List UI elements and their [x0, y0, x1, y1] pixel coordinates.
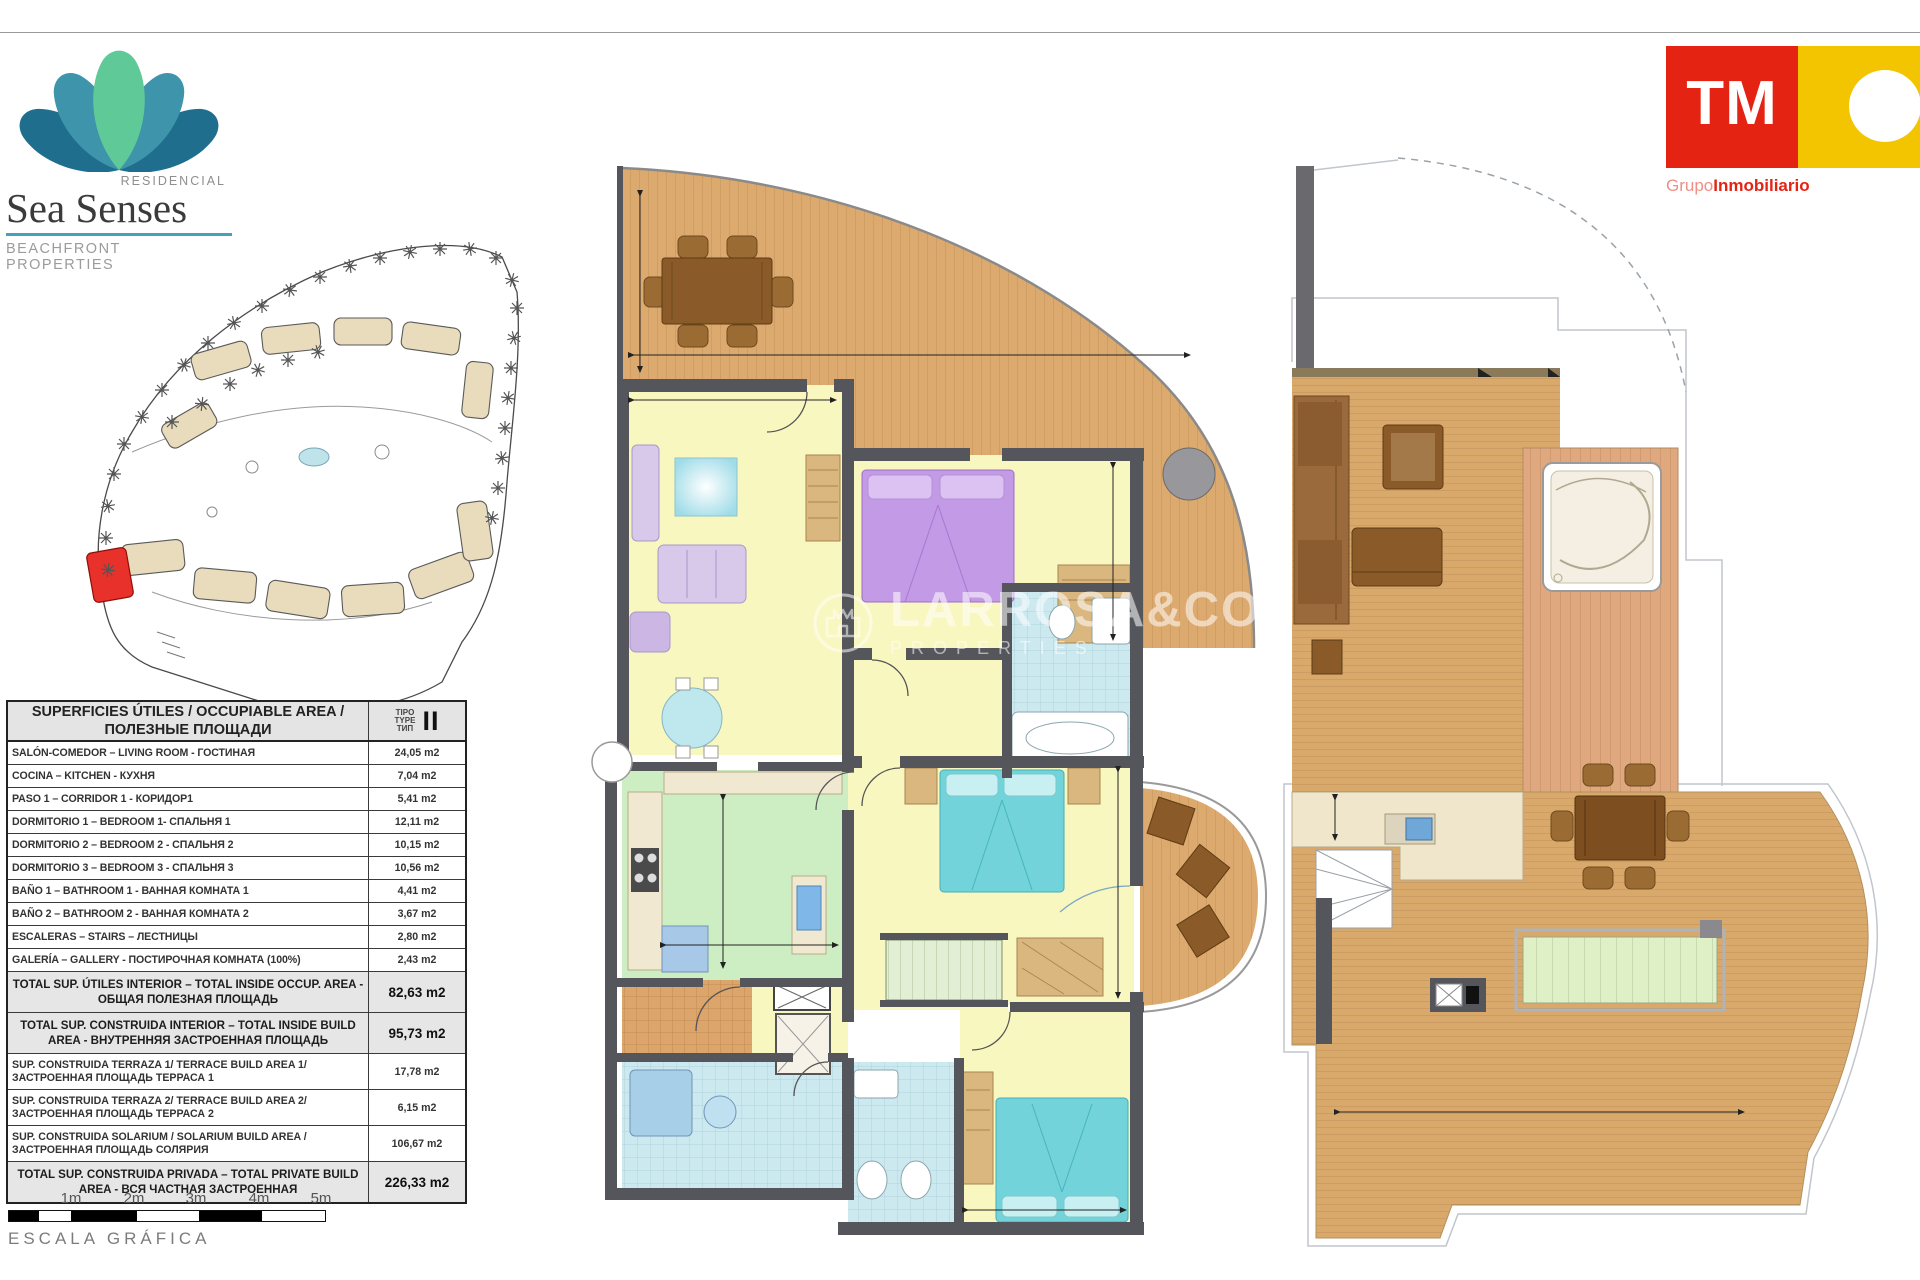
areas-table: SUPERFICIES ÚTILES / OCCUPIABLE AREA / П…	[6, 700, 467, 1204]
graphic-scale: 1m 2m 3m 4m 5m ESCALA GRÁFICA	[8, 1190, 348, 1249]
table-row: SUP. CONSTRUIDA TERRAZA 2/ TERRACE BUILD…	[7, 1090, 466, 1126]
scale-label-3m: 3m	[176, 1190, 216, 1207]
areas-table-title: SUPERFICIES ÚTILES / OCCUPIABLE AREA / П…	[7, 701, 369, 741]
type-line-ru: ТИП	[395, 725, 416, 733]
solarium-left-wall	[1296, 166, 1314, 396]
jacuzzi-area	[1523, 448, 1678, 792]
main-floor-plan	[592, 166, 1266, 1235]
site-plan-sketch	[86, 241, 524, 710]
scale-label-5m: 5m	[301, 1190, 341, 1207]
terrace-round-table	[1163, 448, 1215, 500]
table-row-total: TOTAL SUP. ÚTILES INTERIOR – TOTAL INSID…	[7, 972, 466, 1013]
areas-table-type-cell: TIPO TYPE ТИП II	[369, 701, 467, 741]
table-row: SALÓN-COMEDOR – LIVING ROOM - ГОСТИНАЯ24…	[7, 741, 466, 765]
areas-table-header: SUPERFICIES ÚTILES / OCCUPIABLE AREA / П…	[7, 701, 466, 741]
solarium-dashed-arc	[1398, 158, 1686, 392]
floorplan-brochure-page: RESIDENCIAL Sea Senses BEACHFRONT PROPER…	[0, 0, 1920, 1280]
table-row: BAÑO 2 – BATHROOM 2 - ВАННАЯ КОМНАТА 23,…	[7, 903, 466, 926]
scale-caption: ESCALA GRÁFICA	[8, 1229, 348, 1249]
type-value: II	[422, 706, 439, 737]
highlighted-unit-marker	[86, 547, 134, 603]
gallery-floor	[622, 980, 752, 1062]
table-row: SUP. CONSTRUIDA SOLARIUM / SOLARIUM BUIL…	[7, 1126, 466, 1162]
scale-label-4m: 4m	[239, 1190, 279, 1207]
table-row: GALERÍA – GALLERY - ПОСТИРОЧНАЯ КОМНАТА …	[7, 949, 466, 972]
plan-column-symbol	[592, 742, 632, 782]
scale-bar	[8, 1210, 326, 1222]
table-row: ESCALERAS – STAIRS – ЛЕСТНИЦЫ2,80 m2	[7, 926, 466, 949]
table-row: BAÑO 1 – BATHROOM 1 - ВАННАЯ КОМНАТА 14,…	[7, 880, 466, 903]
table-row: SUP. CONSTRUIDA TERRAZA 1/ TERRACE BUILD…	[7, 1054, 466, 1090]
terrace-2-deck	[1140, 782, 1266, 1012]
table-row-total: TOTAL SUP. CONSTRUIDA INTERIOR – TOTAL I…	[7, 1013, 466, 1054]
table-row: DORMITORIO 3 – BEDROOM 3 - СПАЛЬНЯ 310,5…	[7, 857, 466, 880]
scale-label-1m: 1m	[51, 1190, 91, 1207]
table-row: DORMITORIO 1 – BEDROOM 1- СПАЛЬНЯ 112,11…	[7, 811, 466, 834]
solarium-floor-plan	[1284, 158, 1877, 1246]
table-row: PASO 1 – CORRIDOR 1 - КОРИДОР15,41 m2	[7, 788, 466, 811]
table-row: COCINA – KITCHEN - КУХНЯ7,04 m2	[7, 765, 466, 788]
stairs	[880, 933, 1008, 1007]
scale-label-2m: 2m	[114, 1190, 154, 1207]
solarium-bbq	[1430, 978, 1486, 1012]
table-row: DORMITORIO 2 – BEDROOM 2 - СПАЛЬНЯ 210,1…	[7, 834, 466, 857]
scale-labels: 1m 2m 3m 4m 5m	[8, 1190, 348, 1208]
